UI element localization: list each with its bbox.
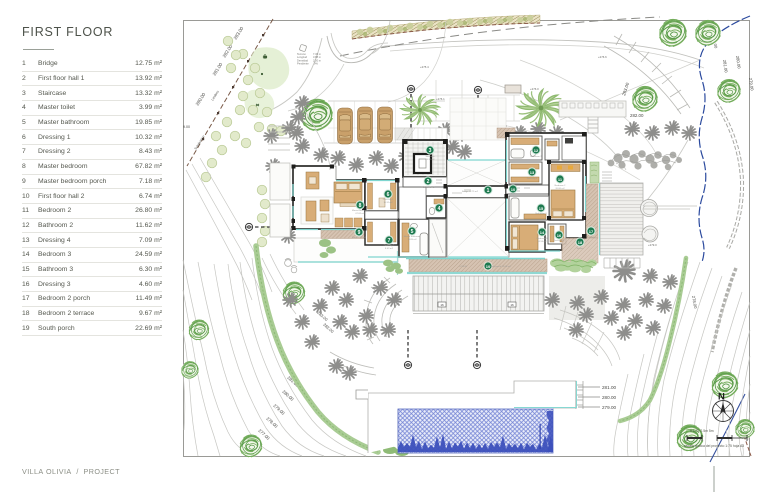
svg-text:26.80 m2: 26.80 m2 (555, 188, 565, 190)
svg-text:19.85 m2: 19.85 m2 (407, 239, 417, 241)
svg-text:280.00: 280.00 (195, 92, 207, 107)
svg-text:9: 9 (358, 230, 361, 236)
svg-text:Dressing 2: Dressing 2 (384, 244, 395, 247)
svg-text:Master bathroom: Master bathroom (404, 235, 421, 238)
svg-text:10.32 m2: 10.32 m2 (383, 202, 393, 204)
svg-text:4: 4 (438, 206, 441, 212)
svg-text:0 1:75 2.5m 5m: 0 1:75 2.5m 5m (690, 429, 714, 433)
svg-text:279.00: 279.00 (602, 405, 616, 410)
svg-text:282.00: 282.00 (630, 113, 644, 118)
svg-text:281.00: 281.00 (212, 62, 224, 77)
svg-text:13: 13 (530, 170, 535, 175)
svg-text:278.00: 278.00 (691, 295, 698, 309)
svg-text:Terrace: Terrace (576, 247, 584, 250)
svg-text:+276.6: +276.6 (598, 55, 607, 59)
svg-text:283.00: 283.00 (233, 26, 245, 41)
svg-text:Porch 7.18 m2: Porch 7.18 m2 (352, 236, 367, 239)
svg-text:17: 17 (589, 229, 594, 234)
svg-text:Porch: Porch (589, 236, 595, 239)
svg-text:3: 3 (429, 148, 432, 154)
svg-text:283.00: 283.00 (316, 310, 329, 322)
svg-text:+275.4: +275.4 (420, 65, 429, 69)
svg-text:Hall 13.92 m2: Hall 13.92 m2 (421, 187, 435, 189)
svg-text:8.43 m2: 8.43 m2 (385, 248, 394, 250)
svg-text:9.00: 9.00 (183, 125, 190, 129)
svg-text:18: 18 (578, 240, 583, 245)
svg-text:16: 16 (510, 303, 514, 307)
svg-text:280.00: 280.00 (602, 395, 616, 400)
svg-text:24.59 m2: 24.59 m2 (537, 241, 547, 243)
svg-text:escala grafica del proyecto 1:: escala grafica del proyecto 1:75 hoja A3 (684, 444, 744, 448)
svg-text:+276.1: +276.1 (436, 97, 445, 101)
svg-text:10: 10 (511, 187, 516, 192)
svg-text:8: 8 (359, 203, 362, 209)
svg-text:Dressing 4: Dressing 4 (527, 177, 538, 180)
svg-text:16: 16 (440, 303, 444, 307)
svg-text:281.00: 281.00 (602, 385, 616, 390)
svg-text:281.00: 281.00 (722, 59, 729, 73)
svg-text:15: 15 (539, 206, 544, 211)
svg-text:280.00: 280.00 (735, 55, 742, 69)
svg-text:12: 12 (534, 148, 539, 153)
svg-text:Bathroom 2: Bathroom 2 (530, 155, 542, 158)
svg-text:+279.0: +279.0 (648, 243, 657, 247)
svg-text:Bedroom 2: Bedroom 2 (555, 184, 566, 187)
svg-text:Bedroom 3: Bedroom 3 (537, 237, 548, 240)
svg-text:Master bedroom: Master bedroom (352, 209, 368, 212)
svg-text:280.00: 280.00 (281, 389, 295, 402)
svg-text:Bathroom 3: Bathroom 3 (535, 212, 547, 215)
svg-text:Pendiente: Pendiente (297, 62, 309, 66)
svg-text:14: 14 (540, 230, 545, 235)
svg-text:16: 16 (557, 233, 562, 238)
svg-text:Staircase: Staircase (425, 155, 435, 158)
svg-text:282.00: 282.00 (322, 322, 335, 334)
svg-text:N: N (718, 392, 725, 403)
svg-text:Subdivision: Subdivision (193, 134, 205, 150)
svg-text:5: 5 (411, 229, 414, 235)
svg-text:Bridge 12.75 m2: Bridge 12.75 m2 (462, 190, 479, 193)
svg-text:67.82 m2: 67.82 m2 (355, 213, 365, 215)
svg-text:13.32 m2: 13.32 m2 (425, 159, 435, 161)
svg-text:2: 2 (427, 179, 430, 185)
svg-text:7: 7 (388, 238, 391, 244)
svg-text:Lindero: Lindero (210, 90, 219, 102)
svg-text:1: 1 (487, 188, 490, 194)
svg-text:Dressing 1: Dressing 1 (383, 198, 394, 201)
svg-text:6: 6 (387, 192, 390, 198)
svg-text:Dressing 3: Dressing 3 (554, 239, 565, 242)
svg-text:283.00: 283.00 (621, 81, 630, 96)
svg-text:South porch 22.69 m2: South porch 22.69 m2 (489, 265, 511, 268)
svg-text:+276.20: +276.20 (459, 266, 468, 268)
svg-text:+276.0: +276.0 (530, 87, 539, 91)
